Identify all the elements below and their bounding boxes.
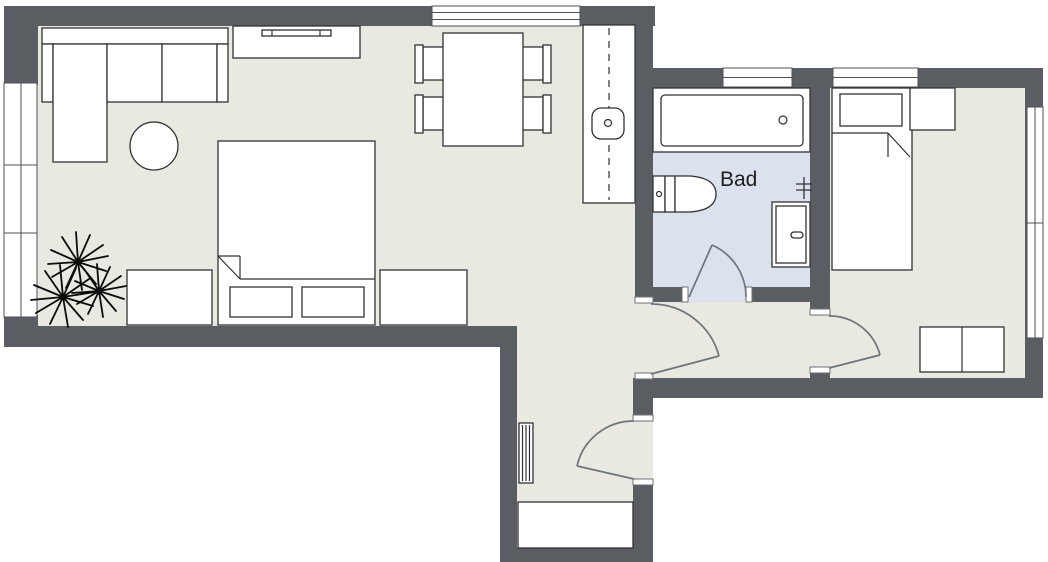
dining-table bbox=[443, 33, 523, 146]
nightstand bbox=[910, 88, 955, 130]
dresser bbox=[127, 270, 212, 325]
bedroom-top-window bbox=[833, 68, 918, 87]
left-window bbox=[4, 83, 37, 317]
toilet bbox=[653, 176, 716, 212]
bathroom-top-window bbox=[723, 68, 792, 87]
dresser bbox=[380, 270, 467, 325]
jamb bbox=[810, 309, 830, 315]
jamb bbox=[633, 415, 653, 421]
hallway-cabinet bbox=[518, 502, 633, 548]
wall-segment bbox=[500, 326, 517, 562]
wall-segment bbox=[4, 326, 517, 347]
wall-segment bbox=[635, 6, 653, 303]
hallway-radiator bbox=[519, 423, 533, 483]
bathroom-cabinet bbox=[772, 202, 810, 267]
wall-segment bbox=[4, 6, 38, 85]
wall-segment bbox=[500, 548, 653, 562]
wall-segment bbox=[633, 378, 1043, 398]
kitchen-counter bbox=[583, 25, 635, 203]
double-bed bbox=[218, 141, 375, 325]
sink bbox=[592, 108, 624, 139]
floor-plan: Bad bbox=[0, 0, 1048, 562]
single-bed bbox=[832, 88, 912, 270]
chair bbox=[522, 95, 551, 133]
sideboard bbox=[233, 26, 360, 58]
bedroom-right-window bbox=[1027, 107, 1043, 338]
bathroom-label: Bad bbox=[720, 168, 757, 191]
wall-segment bbox=[633, 484, 653, 562]
floor-plan-drawing: Bad bbox=[0, 0, 1048, 562]
chair bbox=[415, 95, 444, 133]
wall-segment bbox=[810, 68, 830, 315]
jamb bbox=[810, 367, 830, 373]
chair bbox=[522, 45, 551, 83]
jamb bbox=[635, 297, 653, 303]
jamb bbox=[635, 373, 653, 379]
top-window bbox=[432, 6, 580, 26]
jamb bbox=[682, 287, 688, 302]
wardrobe bbox=[920, 327, 1004, 372]
jamb bbox=[633, 479, 653, 485]
chair bbox=[415, 45, 444, 83]
bathtub bbox=[653, 88, 810, 152]
wall-segment bbox=[746, 287, 810, 302]
handle bbox=[791, 232, 803, 238]
round-side-table bbox=[130, 122, 178, 170]
jamb bbox=[746, 287, 752, 302]
